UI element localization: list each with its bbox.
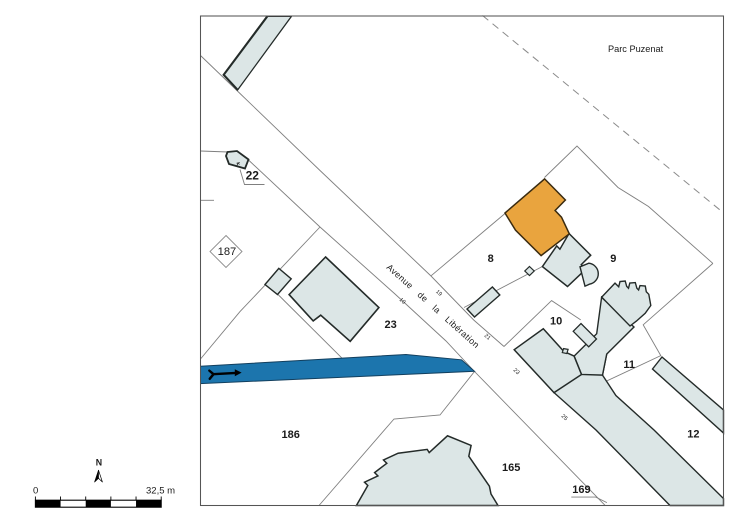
svg-text:186: 186: [282, 429, 300, 441]
svg-text:169: 169: [572, 484, 590, 496]
svg-text:11: 11: [623, 359, 635, 371]
svg-text:165: 165: [502, 462, 520, 474]
svg-text:12: 12: [687, 429, 699, 441]
svg-text:9: 9: [610, 253, 616, 265]
svg-text:10: 10: [550, 315, 562, 327]
svg-text:32,5 m: 32,5 m: [146, 486, 175, 497]
svg-text:8: 8: [488, 253, 494, 265]
svg-text:22: 22: [246, 169, 260, 183]
svg-text:23: 23: [385, 319, 397, 331]
svg-text:0: 0: [33, 486, 38, 497]
svg-text:N: N: [96, 457, 102, 467]
svg-text:187: 187: [218, 246, 237, 258]
svg-text:Parc Puzenat: Parc Puzenat: [608, 44, 664, 54]
